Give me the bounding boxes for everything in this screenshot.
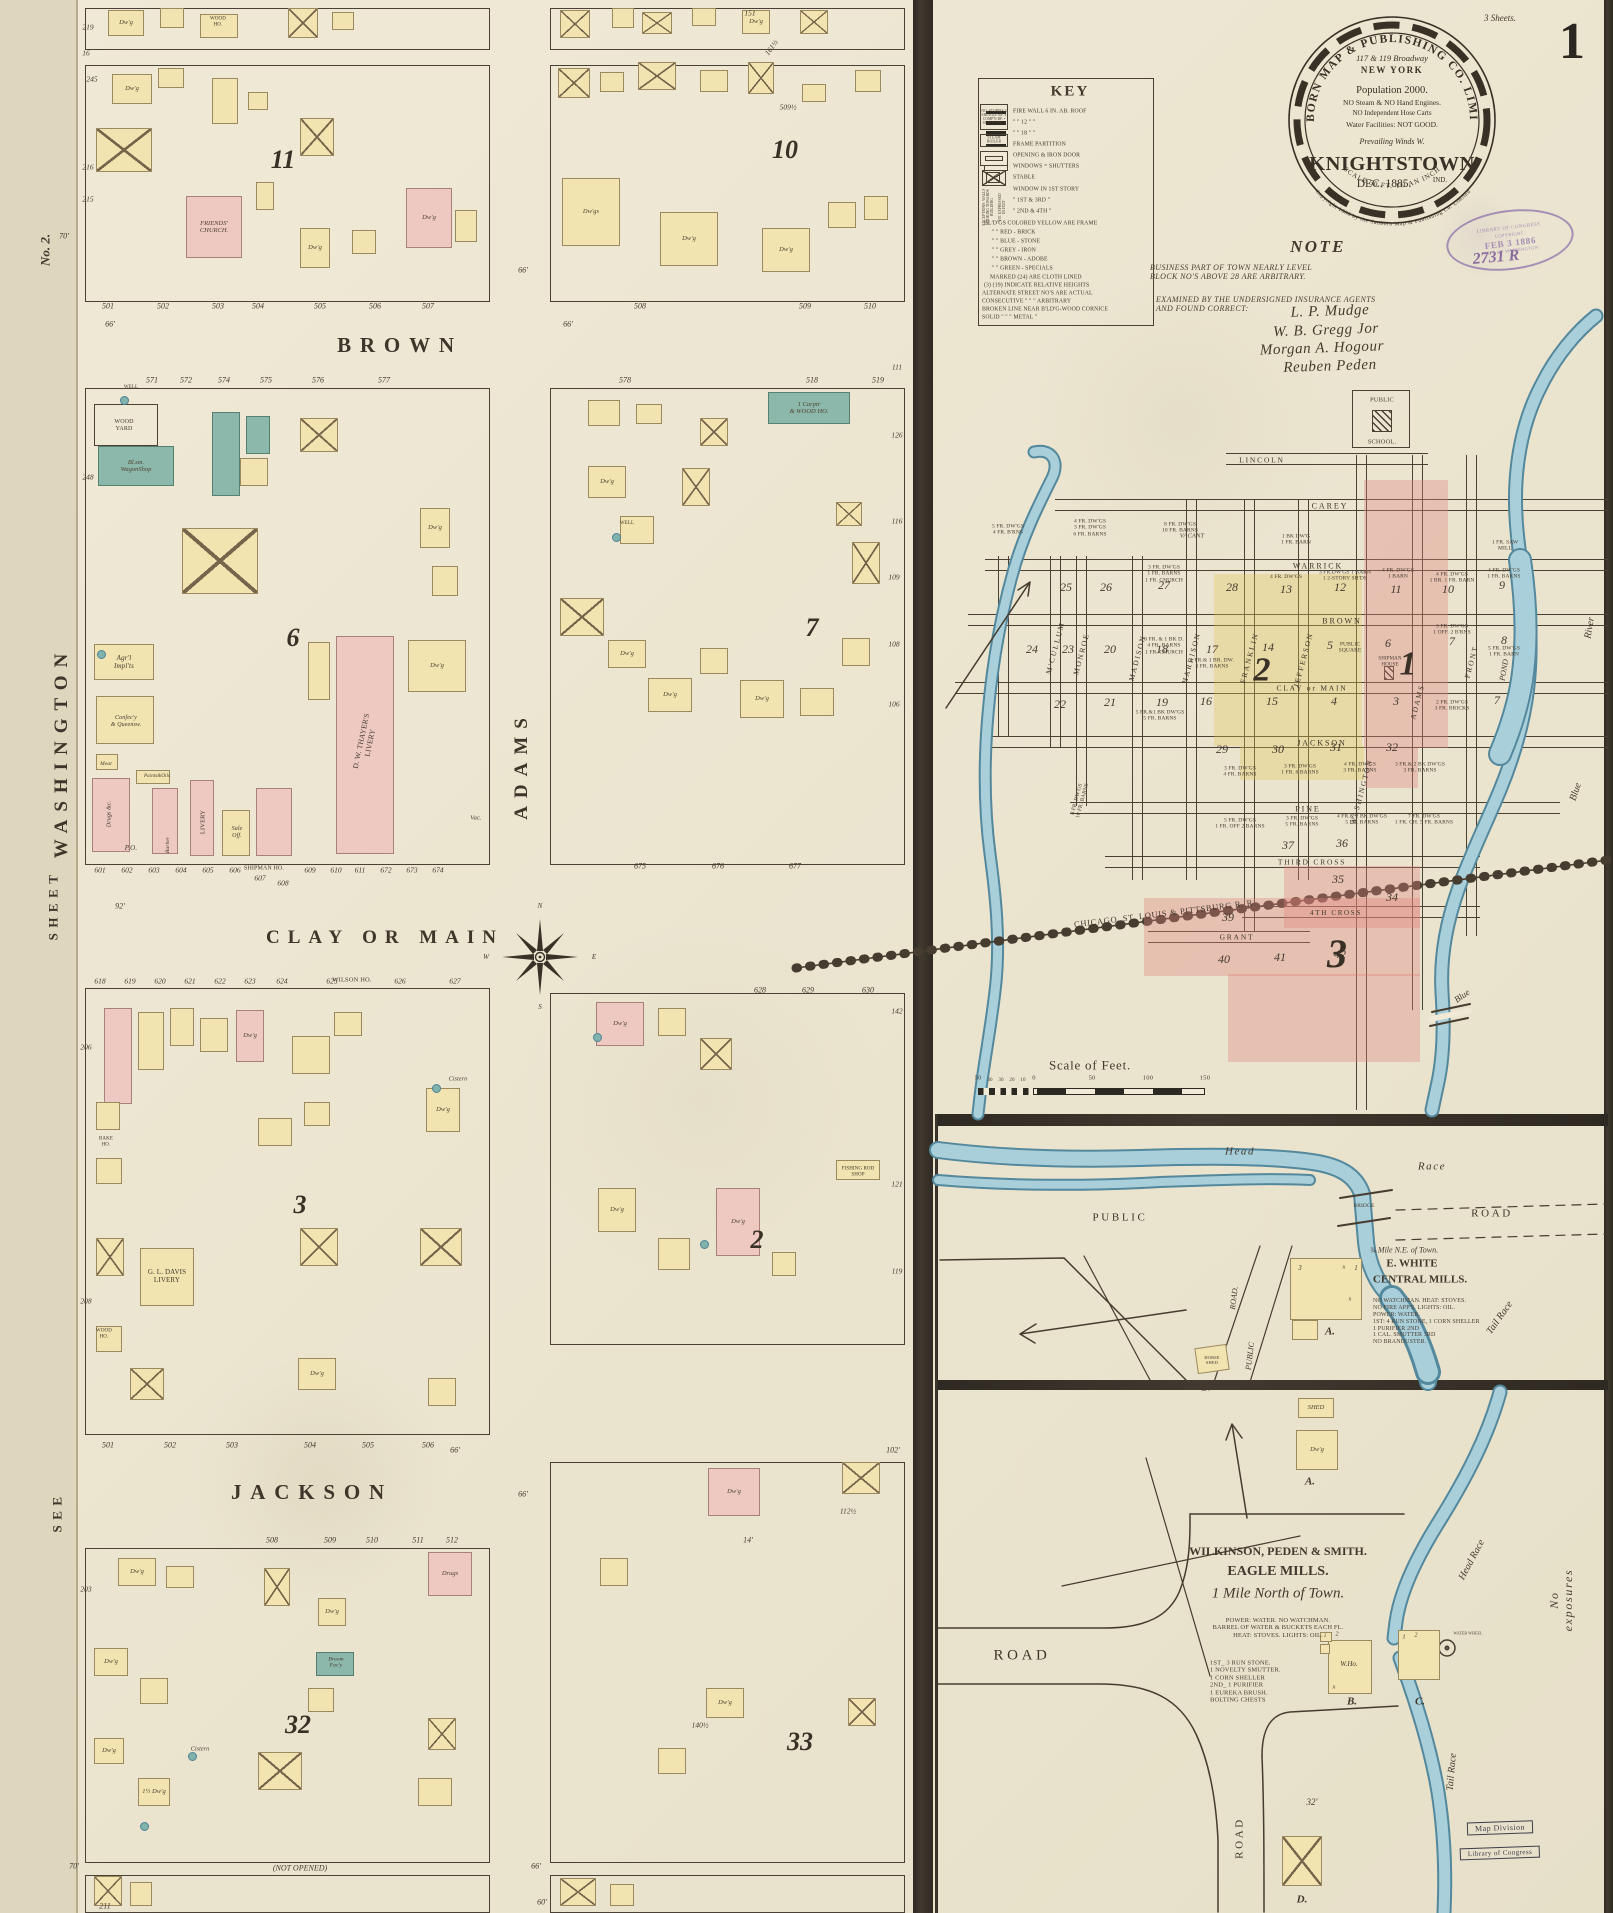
map-label: ROAD (994, 1647, 1051, 1664)
map-label: 50 (1089, 1074, 1096, 1081)
map-label: " " 12 " " (1013, 120, 1035, 127)
map-label: 23 (1062, 643, 1074, 657)
map-label: BRIDGE (1353, 1203, 1374, 1209)
map-label: 501 (102, 1440, 114, 1449)
map-label: 215 (82, 196, 93, 205)
map-label: 35 (1332, 873, 1344, 887)
stamp-state: IND. (1433, 176, 1447, 184)
map-label: LIVERY (199, 810, 206, 834)
building-label: Dw'g (600, 478, 614, 485)
building (1320, 1644, 1330, 1654)
map-label: ALTERNATE STREET NO'S ARE ACTUAL (982, 291, 1093, 298)
map-label: ROAD. (1228, 1286, 1240, 1310)
map-label: 602 (121, 867, 132, 876)
map-label: 578 (619, 375, 631, 384)
map-area (935, 1114, 938, 1913)
building: Dw'g (1296, 1430, 1338, 1470)
map-label: STEAM BOILER (987, 136, 1001, 145)
map-label: 6 (1385, 637, 1391, 651)
building (658, 1748, 686, 1774)
map-label: WATER WHEEL (1453, 1632, 1482, 1637)
map-path (1340, 1190, 1392, 1198)
map-label: 575 (260, 375, 272, 384)
building (802, 84, 826, 102)
map-label: 60' (537, 1897, 547, 1906)
building (240, 458, 268, 486)
map-label: 607 (254, 875, 265, 884)
map-path (1338, 1218, 1390, 1226)
map-label: 100 (1143, 1074, 1153, 1081)
map-label: 66' (563, 319, 573, 328)
map-label: VACANT (1180, 532, 1205, 539)
map-label: 623 (244, 978, 255, 987)
map-label: SOLID " " " METAL " (982, 315, 1037, 322)
map-label: 245 (86, 76, 97, 85)
map-label: 507 (422, 301, 434, 310)
block-number: 10 (772, 135, 798, 165)
map-label: SHIPMAN HO. (244, 866, 284, 873)
map-path (1432, 316, 1596, 1110)
map-label: 619 (124, 978, 135, 987)
eagle-mills-name: EAGLE MILLS. (1227, 1564, 1328, 1580)
building (700, 1038, 732, 1070)
building: Dw'g (708, 1468, 760, 1516)
well-marker (432, 1084, 441, 1093)
map-label: Vac. (470, 814, 482, 821)
building-label: Dw'g (104, 1658, 118, 1665)
map-label: 4 FR.& 2 BK DW'GS 5 FR. BARNS (1337, 814, 1387, 827)
map-label: 108 (888, 641, 899, 650)
map-label: FRAME PARTITION (1013, 142, 1066, 149)
map-label: WOOD HO. (210, 16, 226, 28)
map-label: WINDOWS = SHUTTERS (1013, 164, 1079, 171)
building (96, 1158, 122, 1184)
map-label: 142 (891, 1008, 902, 1017)
map-label: River (1582, 616, 1597, 639)
building (612, 8, 634, 28)
map-label: PUBLIC (1370, 396, 1394, 403)
block-number: 2 (751, 1225, 764, 1255)
map-label: Head Race (1457, 1538, 1488, 1582)
building (96, 1238, 124, 1276)
building (332, 12, 354, 30)
building-label: Dw'g (755, 695, 769, 702)
map-label: 40 (987, 1078, 992, 1084)
map-label: 102' (886, 1445, 900, 1454)
map-path (938, 1514, 1404, 1628)
see-sheet-note: SHEET (47, 870, 62, 941)
map-label: 512 (446, 1535, 458, 1544)
map-area (913, 0, 933, 1913)
building (855, 70, 881, 92)
map-label: Race (1418, 1161, 1446, 1174)
building (560, 1878, 596, 1906)
building: Dw'g (108, 10, 144, 36)
map-label: 504 (252, 301, 264, 310)
map-label: 621 (184, 978, 195, 987)
map-label: x (1333, 1685, 1336, 1692)
map-label: 503 (212, 301, 224, 310)
map-label: 5 (1327, 639, 1333, 653)
building (138, 1012, 164, 1070)
map-label: 606 (229, 867, 240, 876)
map-label: 5 FR. DW'GS 1 FR. BARN (1488, 646, 1520, 659)
map-label: 7 (1449, 635, 1455, 649)
sheet-number: 1 (1559, 12, 1585, 72)
building (836, 502, 862, 526)
map-area (935, 1380, 1608, 1390)
map-area (0, 0, 78, 1913)
key-title-dup: KEY (1051, 83, 1090, 100)
map-area (980, 151, 1008, 166)
building (158, 68, 184, 88)
building-label: Dw'g (102, 1747, 116, 1754)
map-label: 2 FR. DW'GS 3 FR. BRICKS (1435, 700, 1470, 713)
map-area (550, 8, 905, 50)
map-label: 66' (518, 265, 528, 274)
building (560, 598, 604, 636)
map-label: 675 (634, 861, 646, 870)
map-label: Barber (165, 837, 171, 853)
map-label: 506 (369, 301, 381, 310)
well-marker (700, 1240, 709, 1249)
street-label-washington: WASHINGTON (51, 646, 73, 859)
sanborn-map-sheet: SANBORN MAP & PUBLISHING CO. LIMITED SCA… (0, 0, 1613, 1913)
stamp-engines: NO Steam & NO Hand Engines. (1343, 98, 1441, 107)
sheet-area-number: 3 (1327, 931, 1347, 977)
map-label: 111 (892, 364, 902, 373)
building: Dw'g (118, 1558, 156, 1586)
block-number: 32 (285, 1710, 311, 1740)
building (692, 8, 716, 26)
map-label: 22 (1054, 698, 1066, 712)
map-label: 3 (1298, 1264, 1302, 1272)
building (304, 1102, 330, 1126)
well-marker (593, 1033, 602, 1042)
map-label: 506 (422, 1440, 434, 1449)
map-path (1020, 1310, 1186, 1343)
building (166, 1566, 194, 1588)
map-label: D. (1297, 1894, 1308, 1907)
map-label: MARKED (24) ARE CLOTH LINED (990, 275, 1082, 282)
block-number: 11 (271, 145, 296, 175)
building (334, 1012, 362, 1036)
map-path (1431, 1011, 1469, 1019)
map-label: 624 (276, 978, 287, 987)
map-label: 16 (82, 50, 90, 59)
library-of-congress-stamp: Library of Congress (1460, 1846, 1541, 1861)
map-label: 216 (82, 164, 93, 173)
building (258, 1752, 302, 1790)
building (610, 1884, 634, 1906)
building (248, 92, 268, 110)
building (428, 1718, 456, 1750)
map-label: 126 (891, 432, 902, 441)
map-label: CLAY or MAIN (1276, 685, 1347, 694)
map-label: 519 (872, 375, 884, 384)
map-label: 630 (862, 985, 874, 994)
map-label: 10 (1442, 583, 1454, 597)
map-label: Paints&Oils (144, 774, 170, 780)
map-label: 609 (304, 867, 315, 876)
building (246, 416, 270, 454)
map-label: x (1343, 1265, 1346, 1272)
map-area (982, 170, 1006, 186)
building: 1½ Dw'g (138, 1778, 170, 1806)
map-label: WELL (620, 521, 634, 527)
map-label: " 1ST & 3RD " (1013, 198, 1050, 205)
map-label: 4 FR. DW'GS 3 FR. BARNS (1343, 762, 1376, 775)
map-label: 510 (864, 301, 876, 310)
map-label: 674 (432, 867, 443, 876)
building: 1 Carptr & WOOD HO. (768, 392, 850, 424)
map-label: 92' (115, 901, 125, 910)
map-area (550, 1875, 905, 1913)
map-area (550, 1462, 905, 1863)
building (308, 642, 330, 700)
building-label: Dw'g (125, 85, 139, 92)
building: Dw'g (598, 1188, 636, 1232)
map-label: 620 (154, 978, 165, 987)
map-label: 626 (394, 978, 405, 987)
map-label: 17 (1206, 643, 1218, 657)
map-label: 505 (314, 301, 326, 310)
building: Dw'g (420, 508, 450, 548)
sheet-area-number: 2 (1254, 650, 1271, 689)
building (800, 688, 834, 716)
map-label: 7 FR. DW'GS 1 FR. CH. 5 FR. BARNS (1395, 814, 1453, 827)
building-label: Dw'g (428, 524, 442, 531)
building: Dw'g (318, 1598, 346, 1626)
building (432, 566, 458, 596)
building (418, 1778, 452, 1806)
street (1076, 556, 1087, 806)
map-label: CAREY (1312, 501, 1349, 510)
signature: Reuben Peden (1283, 357, 1377, 377)
map-area (1214, 574, 1362, 746)
map-area (1372, 410, 1392, 432)
building (200, 1018, 228, 1052)
map-label: 4 FR. DW'GS 1 BARN (1382, 568, 1414, 581)
map-label: 219 (82, 24, 93, 33)
map-label: 502 (157, 301, 169, 310)
building-label: Dw'g (308, 244, 322, 251)
building: Dw'g (236, 1010, 264, 1062)
building: Dw'g (298, 1358, 336, 1390)
map-label: 504 (304, 1440, 316, 1449)
building-label: Dw'g (663, 691, 677, 698)
map-label: 4 FR. DW'GS 1 BR. 1 FR. BARN (1430, 572, 1475, 585)
map-label: 32 (1386, 741, 1398, 755)
building-label: Dw'g (243, 1032, 257, 1039)
see-sheet-note: SEE (51, 1492, 66, 1533)
building: SHED (1298, 1398, 1334, 1418)
building (212, 78, 238, 124)
building (140, 1678, 168, 1704)
map-label: 1 (1324, 1634, 1327, 1640)
map-label: 3 FR. DW'GS 1 OFF. 2 B'RNS (1433, 624, 1471, 637)
building: Dw'g (740, 680, 784, 718)
map-label: 3 (1393, 695, 1399, 709)
map-label: ROAD (1234, 1817, 1247, 1859)
map-label: BL'D'GS COLORED YELLOW ARE FRAME (984, 221, 1097, 228)
building-label: Dw'g (613, 1020, 627, 1027)
map-label: GRANT (1220, 934, 1255, 943)
map-path (1262, 1706, 1398, 1756)
building-label: 1 Carptr & WOOD HO. (790, 401, 829, 415)
map-label: 10 (1020, 1078, 1025, 1084)
map-area (1604, 0, 1613, 1913)
map-label: 66' (450, 1445, 460, 1454)
map-path (978, 451, 1055, 1114)
map-label: 610 (330, 867, 341, 876)
map-label: 576 (312, 375, 324, 384)
map-label: 510 (366, 1535, 378, 1544)
map-path (1446, 1647, 1449, 1650)
map-label: WOOD HO. (96, 1328, 112, 1340)
signature: L. P. Mudge (1290, 302, 1369, 322)
map-label: 203 (80, 1586, 91, 1595)
map-label: 5 FR. DW'GS 4 FR. B'RNS (992, 524, 1024, 537)
map-label: Cistern (449, 1077, 468, 1084)
map-label: WILSON HO. (332, 976, 371, 983)
map-label: W.Ho. (1340, 1660, 1357, 1668)
map-label: 31 (1330, 741, 1342, 755)
street (1466, 455, 1477, 936)
map-label: 29 (1216, 743, 1228, 757)
map-label: 608 (277, 880, 288, 889)
map-label: " " GREEN - SPECIALS (992, 266, 1053, 273)
building: Dw'g (596, 1002, 644, 1046)
map-path (978, 451, 1055, 1114)
central-mills-owner: E. WHITE (1386, 1258, 1437, 1271)
building-label: FRIENDS' CHURCH. (200, 220, 228, 234)
map-label: 572 (180, 375, 192, 384)
map-label: " " GREY - IRON (992, 248, 1036, 255)
map-label: W (483, 953, 489, 961)
building-label: Dw'g (436, 1106, 450, 1113)
block-number: 3 (294, 1190, 307, 1220)
building: Dw'g (94, 1738, 124, 1764)
building-label: Dw'g (430, 662, 444, 669)
map-label: B. (1201, 1382, 1210, 1394)
map-label: OPENING & IRON DOOR (1013, 153, 1080, 160)
street (1186, 499, 1197, 880)
map-label: 19 (1156, 696, 1168, 710)
building: Dw'g (94, 1648, 128, 1676)
building-label: Dw'g (620, 650, 634, 657)
map-label: 30 (998, 1078, 1003, 1084)
block-number: 7 (806, 613, 819, 643)
map-label: 3 FR. DW'GS 4 FR. BARNS (1223, 766, 1256, 779)
map-label: Blue (1452, 987, 1471, 1005)
map-label: 4 (1331, 695, 1337, 709)
building-label: Dw'g (682, 235, 696, 242)
building: Dw'g (648, 678, 692, 712)
map-label: WELL (124, 385, 138, 391)
map-label: 15 (1266, 695, 1278, 709)
map-label: PINE (1295, 804, 1320, 813)
map-label: 112½ (840, 1508, 856, 1517)
map-label: 11 (1390, 583, 1401, 597)
map-label: Head (1225, 1146, 1255, 1159)
map-label: 511 (412, 1535, 423, 1544)
building (700, 418, 728, 446)
map-label: 119 (892, 1268, 903, 1277)
map-label: 628 (754, 985, 766, 994)
street-note: (NOT OPENED) (273, 1863, 327, 1872)
building (288, 8, 318, 38)
map-path (1432, 1004, 1470, 1012)
sheet-area-number: 1 (1400, 644, 1417, 683)
map-path (938, 1179, 1310, 1185)
map-label: 140½ (692, 1722, 709, 1731)
map-label: 70' (59, 231, 69, 240)
building (300, 418, 338, 452)
stamp-water-facilities: Water Facilities: NOT GOOD. (1346, 120, 1438, 129)
building (600, 1558, 628, 1586)
building (600, 72, 624, 92)
map-label: Sale Off. (232, 826, 243, 840)
map-label: 509 (799, 301, 811, 310)
building (258, 1118, 292, 1146)
map-label: " " RED - BRICK (992, 230, 1036, 237)
stamp-winds: Prevailing Winds W. (1359, 137, 1425, 146)
map-label: 4TH CROSS (1310, 909, 1362, 917)
map-label: Confec'y & Queensw. (111, 715, 141, 729)
map-label: BROKEN LINE NEAR B'LD'G-WOOD CORNICE (982, 307, 1108, 314)
building (300, 1228, 338, 1266)
map-label: 14' (743, 1535, 753, 1544)
building: Dw'g (706, 1688, 744, 1718)
map-label: POND (1498, 658, 1511, 681)
map-label: 12 (1334, 581, 1346, 595)
street-label-jackson: JACKSON (231, 1480, 393, 1504)
building (96, 128, 152, 172)
map-label: 13 (1280, 583, 1292, 597)
map-label: Cistern (191, 1747, 210, 1754)
stamp-hose-carts: NO Independent Hose Carts (1352, 109, 1431, 117)
sanborn-circular-stamp: SANBORN MAP & PUBLISHING CO. LIMITED SCA… (1280, 6, 1506, 236)
map-label: 66' (105, 319, 115, 328)
building (558, 68, 590, 98)
compass-rose (498, 915, 582, 999)
map-label: ROAD (1471, 1208, 1513, 1221)
street-label-clay-or-main: CLAY OR MAIN (266, 927, 504, 949)
map-label: 5 FR.&1 BK DW'GS 5 FR. BARNS (1136, 710, 1185, 723)
map-label: 629 (802, 985, 814, 994)
map-label: 20 (1104, 643, 1116, 657)
map-label: 501 (102, 301, 114, 310)
building (300, 118, 334, 156)
building (852, 542, 880, 584)
building: Dw'g (406, 188, 452, 248)
building: Bl.sm. WagonShop (98, 446, 174, 486)
building-label: Dw'g (610, 1206, 624, 1213)
well-marker (140, 1822, 149, 1831)
stamp-address: 117 & 119 Broadway (1356, 53, 1428, 63)
building-label: Dw'g (718, 1699, 732, 1706)
street-label-adams: ADAMS (511, 710, 533, 820)
map-label: No exposures (1548, 1569, 1576, 1632)
block-number: 33 (787, 1727, 813, 1757)
stamp-town-name: KNIGHTSTOWN (1309, 153, 1475, 175)
map-path (938, 1684, 1218, 1912)
map-label: ¾ Mile N.E. of Town. (1370, 1245, 1438, 1254)
map-label: 50 (975, 1074, 982, 1081)
map-label: 2 (1336, 1632, 1339, 1639)
well-marker (612, 533, 621, 542)
